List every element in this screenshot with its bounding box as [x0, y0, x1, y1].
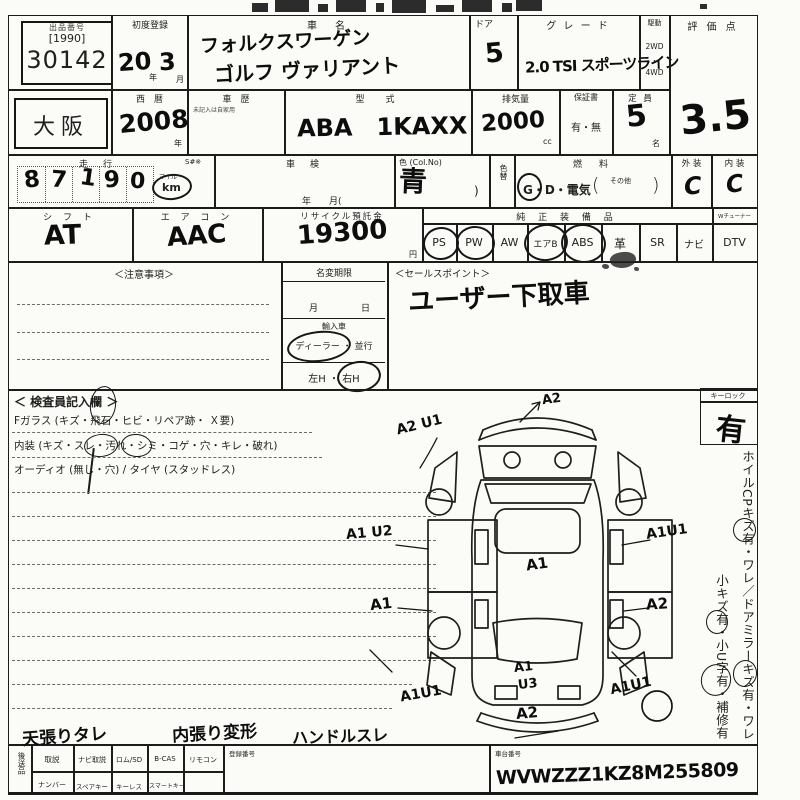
- drive-separator: ・: [641, 56, 668, 66]
- tuner-header: Wチューナー: [713, 208, 758, 224]
- caution-blank-line-2: [17, 332, 269, 333]
- import-label: 輸入車: [283, 321, 385, 332]
- equip-sr: SR: [641, 236, 674, 249]
- fuel-label: 燃 料: [516, 157, 669, 170]
- diagram-label-right-door: A2: [645, 594, 668, 613]
- interior-grade-label: 内 装: [713, 157, 756, 169]
- auction-year-bracket: [1990]: [23, 32, 111, 45]
- diagram-label-roof: A1: [525, 554, 549, 575]
- score-label: 評 価 点: [671, 18, 755, 33]
- mileage-digit-2: 7: [50, 166, 68, 193]
- plate-label: ナンバー: [33, 780, 71, 790]
- keylock-header: キーロック: [700, 388, 758, 402]
- small-scratch-note: 小キズ有・小U字有・補修有: [712, 574, 731, 746]
- displacement-label: 排気量: [473, 92, 558, 105]
- side-note-circle-3: [706, 610, 728, 634]
- auction-number: 30142: [23, 46, 111, 74]
- caution-label: ＜注意事項＞: [9, 266, 279, 281]
- sunroof: [495, 509, 580, 553]
- remote-cell: リモコン: [184, 745, 224, 772]
- exterior-grade-label: 外 装: [673, 157, 710, 169]
- aircon-value: AAC: [166, 219, 227, 253]
- registration-number-cell: 登録番号: [224, 745, 490, 795]
- annotation-line-a2u1: [420, 438, 437, 468]
- front-fender-left: [429, 452, 457, 502]
- recycle-fee-value: 19300: [296, 215, 388, 251]
- remote-label: リモコン: [185, 755, 221, 765]
- front-fender-right: [618, 452, 646, 502]
- history-cell: 車 歴 未記入は自家用: [188, 90, 285, 155]
- equip-leather: 革: [603, 235, 637, 252]
- color-change-label: 色替: [498, 164, 509, 180]
- equip-aw-cell: AW: [493, 224, 528, 262]
- mileage-s-label: S#※: [185, 158, 201, 166]
- rear-window: [493, 619, 582, 664]
- front-bumper-inner: [479, 428, 596, 440]
- headlight-right: [555, 452, 571, 468]
- grade-label: グ レ ー ド: [519, 17, 637, 32]
- bcas-label: B-CAS: [149, 755, 181, 763]
- shaken-cell: 車 検 年 月(: [215, 155, 395, 208]
- fglass-underline: [12, 432, 312, 433]
- month-suffix: 月: [176, 74, 184, 85]
- displacement-unit: cc: [543, 137, 552, 146]
- drive-option-2wd: 2WD: [641, 42, 668, 51]
- windshield: [485, 484, 591, 503]
- note-trim-deform: 内張り変形: [171, 717, 257, 746]
- diagram-label-rear-center-2: U3: [517, 676, 538, 693]
- first-registration-month: 3: [159, 48, 177, 77]
- wheel-mirror-note: ホイルCPキズ有・ワレ／ドアミラーキズ有・ワレ: [738, 450, 757, 742]
- fuel-other-label: その他: [610, 176, 631, 186]
- region-name: 大阪: [14, 109, 108, 141]
- history-label: 車 歴: [189, 92, 283, 105]
- auction-number-cell: 出品番号 [1990] 30142: [8, 15, 112, 90]
- caution-box: ＜注意事項＞: [8, 262, 282, 390]
- bcas-cell: B-CAS: [148, 745, 184, 772]
- recycle-fee-unit: 円: [409, 249, 417, 260]
- auction-sheet-scan: { "sheet": { "top": { "auction_label": "…: [0, 0, 800, 800]
- caution-blank-line-1: [17, 304, 269, 305]
- calendar-year-label: 西 暦: [113, 92, 186, 105]
- annotation-line-a1-left: [398, 608, 432, 611]
- empty-circle-mark: [642, 691, 672, 721]
- equip-dtv-cell: DTV: [713, 224, 758, 262]
- month-label: 月: [309, 301, 318, 314]
- blank-line-10: [12, 708, 392, 709]
- region-cell: 大阪: [8, 90, 112, 155]
- interior-underline: [12, 457, 322, 458]
- rom-sd-label: ロム/SD: [113, 755, 145, 765]
- front-glass-line: Fガラス (キズ・飛石・ヒビ・リペア跡・ Ｘ要): [14, 413, 234, 428]
- equip-aw: AW: [494, 236, 525, 249]
- shaken-label: 車 検: [216, 157, 392, 170]
- registration-number-label: 登録番号: [229, 748, 255, 758]
- equip-navi: ナビ: [678, 236, 710, 251]
- keylock-label: キーロック: [701, 391, 755, 401]
- bottom-border: [8, 792, 758, 795]
- diagram-label-rear-bumper: A2: [515, 703, 539, 723]
- shaken-hint: 年 月(: [302, 194, 342, 207]
- tuner-label: Wチューナー: [714, 212, 755, 220]
- fuel-paren-close: ): [652, 174, 659, 196]
- left-front-pillar: [475, 530, 488, 564]
- annotation-slash-left: [370, 650, 392, 672]
- spare-key-label: スペアキー: [75, 781, 109, 791]
- navi-manual-label: ナビ取説: [75, 755, 109, 765]
- color-change-cell: 色替: [490, 155, 515, 208]
- diagram-label-rear-center-1: A1: [513, 659, 534, 676]
- equip-navi-cell: ナビ: [677, 224, 713, 262]
- name-change-divider-2: [283, 318, 385, 319]
- warranty-options: 有・無: [561, 119, 611, 134]
- year-suffix: 年: [149, 72, 157, 83]
- right-front-pillar: [610, 530, 623, 564]
- caution-blank-line-3: [17, 359, 269, 360]
- first-registration-label: 初度登録: [113, 18, 187, 31]
- vin-label: 車台番号: [495, 748, 521, 758]
- audio-tire-line: オーディオ (無し・穴) / タイヤ (スタッドレス): [14, 462, 235, 477]
- model-code-label: 型 式: [286, 92, 470, 105]
- capacity-unit: 名: [652, 138, 660, 149]
- equip-dtv: DTV: [714, 236, 755, 249]
- auction-score: 3.5: [678, 91, 753, 144]
- mileage-digit-5: 0: [129, 169, 146, 195]
- annotation-line-a2-right: [624, 608, 648, 611]
- annotation-slash-right: [612, 652, 636, 676]
- taillight-right: [558, 686, 580, 699]
- diagram-label-left-door: A1: [369, 594, 393, 614]
- annotation-line-a1u2: [396, 545, 428, 549]
- rear-wheel-left: [428, 617, 460, 649]
- equip-sr-cell: SR: [640, 224, 677, 262]
- manual-label: 取説: [33, 754, 71, 765]
- exterior-grade: C: [683, 171, 703, 200]
- keylock-value: 有: [714, 404, 748, 451]
- later-items-label: 後送品: [16, 752, 27, 775]
- keyless-label: キーレス: [113, 781, 145, 791]
- headlight-left: [504, 452, 520, 468]
- mileage-digit-4: 9: [103, 166, 121, 193]
- equipment-header: 純 正 装 備 品: [423, 208, 713, 224]
- displacement-value: 2000: [480, 107, 546, 137]
- later-items-cell: 後送品: [8, 745, 32, 795]
- calendar-year: 2008: [118, 104, 190, 139]
- left-rear-pillar: [475, 600, 488, 628]
- day-label: 日: [361, 301, 370, 314]
- diagram-label-front: A2: [541, 391, 562, 409]
- shift-value: AT: [43, 219, 81, 251]
- door-label: ドア: [475, 17, 493, 30]
- smart-key-label: スマートキー: [149, 781, 181, 790]
- door-count: 5: [484, 37, 505, 70]
- first-registration-year: 20: [117, 47, 152, 77]
- drive-cell: 駆動 2WD ・ 4WD: [640, 15, 670, 90]
- rear-wheel-right: [608, 617, 640, 649]
- sheet-paper: 出品番号 [1990] 30142 初度登録 20 年 3 月 車 名 フォルク…: [0, 0, 800, 800]
- hood: [479, 446, 596, 478]
- side-note-circle-1: [733, 518, 756, 542]
- name-change-label: 名変期限: [283, 266, 385, 279]
- model-code: ABA 1KAXX: [297, 106, 468, 144]
- clipped-title-fragments: [0, 0, 800, 14]
- interior-grade: C: [724, 169, 745, 199]
- capacity-value: 5: [624, 98, 648, 135]
- manual-cell: 取説: [32, 745, 74, 772]
- drive-option-4wd: 4WD: [641, 68, 668, 77]
- equipment-label: 純 正 装 備 品: [424, 210, 710, 223]
- name-change-divider-1: [283, 281, 385, 282]
- navi-manual-cell: ナビ取説: [74, 745, 112, 772]
- warranty-label: 保証書: [561, 92, 611, 103]
- annotation-line-a1u1-right: [622, 540, 650, 545]
- mileage-digit-1: 8: [23, 166, 42, 194]
- rom-sd-cell: ロム/SD: [112, 745, 148, 772]
- fuel-paren-open: (: [592, 174, 599, 196]
- drive-label: 駆動: [641, 18, 668, 28]
- warranty-cell: 保証書 有・無: [560, 90, 613, 155]
- calendar-year-suffix: 年: [174, 138, 182, 149]
- color-paren-close: ): [474, 184, 479, 198]
- color-value: 青: [398, 160, 427, 201]
- taillight-left: [495, 686, 517, 699]
- history-note: 未記入は自家用: [193, 105, 235, 114]
